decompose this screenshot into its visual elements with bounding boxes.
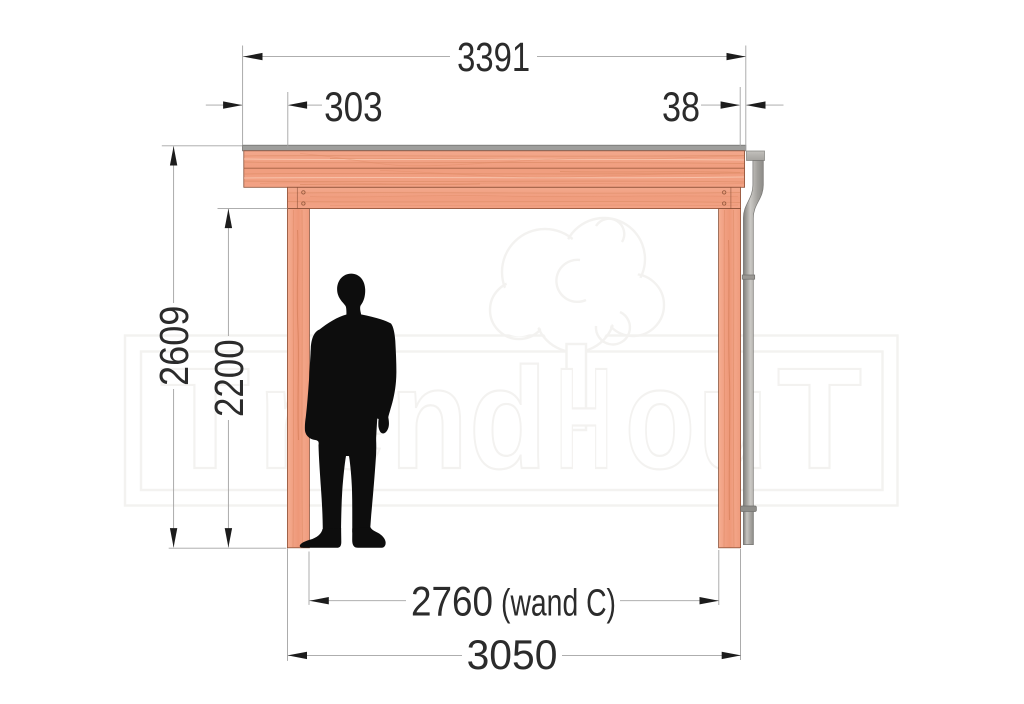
svg-text:T: T xyxy=(777,338,862,499)
svg-text:3050: 3050 xyxy=(467,631,558,678)
svg-text:(wand C): (wand C) xyxy=(501,583,616,625)
svg-text:2609: 2609 xyxy=(151,306,197,386)
svg-text:H: H xyxy=(556,338,612,499)
svg-text:2200: 2200 xyxy=(206,339,252,417)
svg-text:n: n xyxy=(390,338,468,499)
svg-text:d: d xyxy=(469,338,547,499)
svg-text:3391: 3391 xyxy=(457,34,530,80)
svg-text:303: 303 xyxy=(324,83,383,130)
svg-text:2760: 2760 xyxy=(411,578,493,625)
svg-text:38: 38 xyxy=(662,83,700,130)
svg-text:o: o xyxy=(625,338,695,499)
